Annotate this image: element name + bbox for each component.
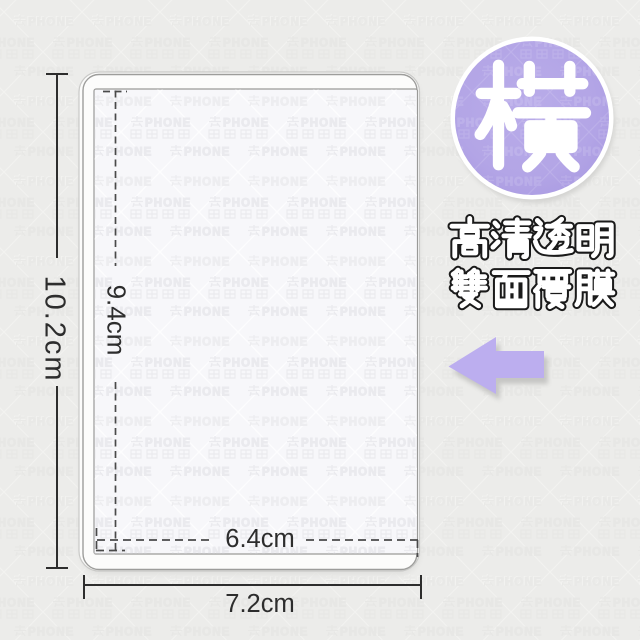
svg-text:7.2cm: 7.2cm bbox=[225, 590, 294, 618]
svg-text:9.4cm: 9.4cm bbox=[102, 285, 132, 356]
svg-text:10.2cm: 10.2cm bbox=[39, 275, 71, 382]
svg-text:6.4cm: 6.4cm bbox=[225, 525, 294, 553]
